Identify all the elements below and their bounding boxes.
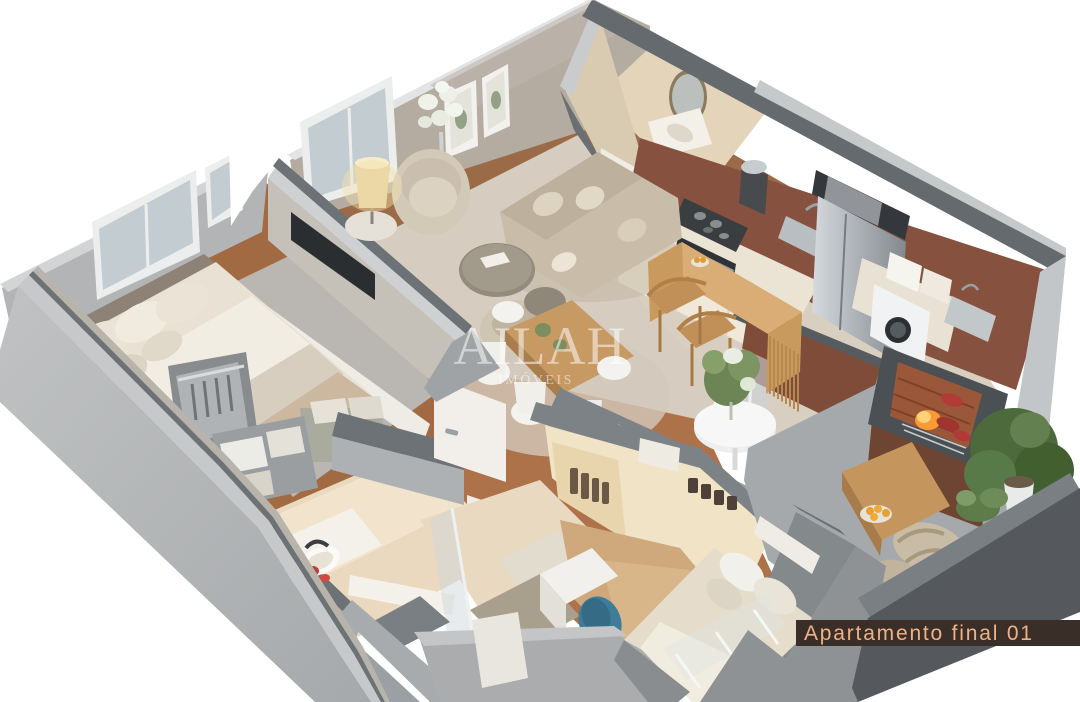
svg-text:Apartamento final 01: Apartamento final 01 <box>804 622 1034 645</box>
svg-text:AILAH: AILAH <box>454 316 627 376</box>
svg-text:IMÓVEIS: IMÓVEIS <box>498 371 574 388</box>
